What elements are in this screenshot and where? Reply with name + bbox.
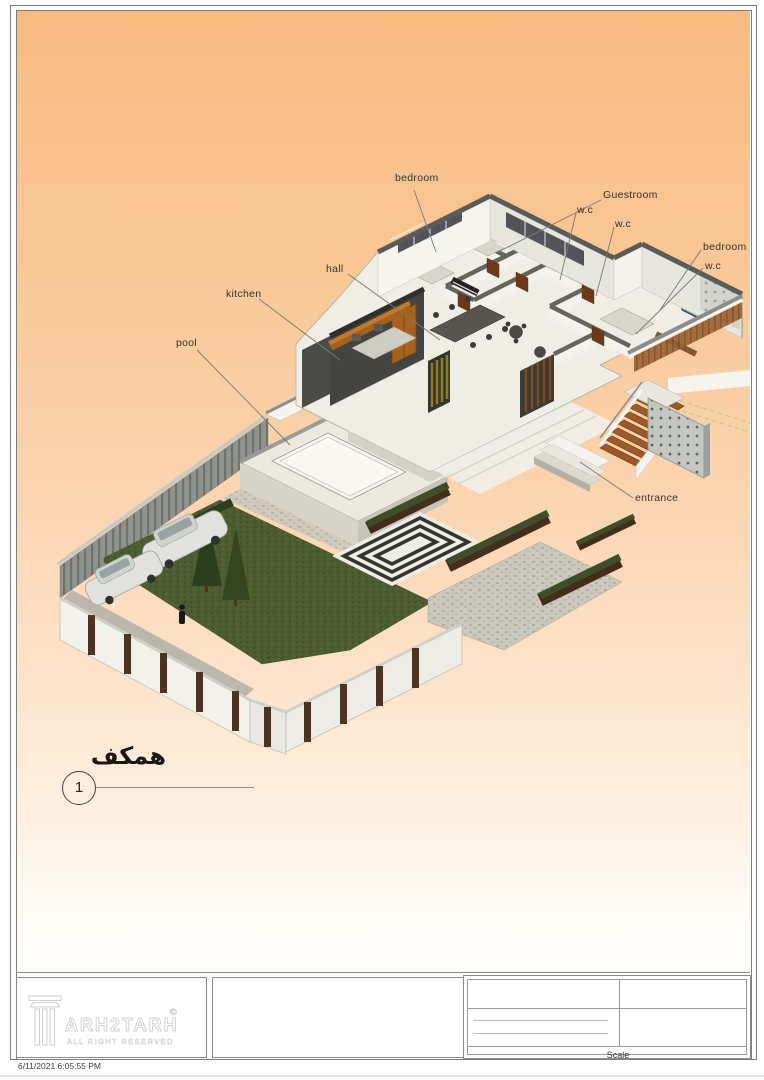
title-block-rule bbox=[473, 1033, 608, 1034]
perforated-screen bbox=[648, 398, 710, 478]
company-logo: ARH2TARH © ALL RIGHT RESERVED bbox=[28, 993, 188, 1053]
title-block-rule bbox=[473, 1020, 608, 1021]
scale-label: Scale bbox=[588, 1050, 648, 1060]
column-logo-icon bbox=[28, 995, 62, 1049]
title-block-rule bbox=[468, 1008, 746, 1009]
label-pool: pool bbox=[176, 337, 197, 349]
brand-name: ARH2TARH bbox=[65, 1015, 179, 1036]
floor-title-farsi: همکف bbox=[96, 742, 166, 770]
view-number-bubble: 1 bbox=[62, 771, 96, 805]
copyright-icon: © bbox=[170, 1007, 177, 1017]
label-wc-top-left: w.c bbox=[577, 204, 593, 216]
label-bedroom-top: bedroom bbox=[395, 172, 439, 184]
label-kitchen: kitchen bbox=[226, 288, 261, 300]
label-wc-top-right: w.c bbox=[615, 218, 631, 230]
sheet-page: bedroom Guestroom w.c w.c bedroom w.c ha… bbox=[0, 0, 764, 1080]
callout-reference-line bbox=[96, 787, 254, 788]
title-block-rule bbox=[468, 1046, 746, 1047]
label-hall: hall bbox=[326, 263, 344, 275]
page-edge-shadow bbox=[0, 1075, 764, 1077]
title-block-inner-border: Scale bbox=[467, 979, 747, 1055]
print-timestamp: 6/11/2021 6:05:55 PM bbox=[18, 1061, 101, 1071]
label-guestroom: Guestroom bbox=[603, 189, 658, 201]
title-block-empty-cell bbox=[212, 977, 471, 1058]
brand-tagline: ALL RIGHT RESERVED bbox=[67, 1037, 174, 1046]
person-figure bbox=[179, 604, 185, 624]
title-block-scale-cell: Scale bbox=[463, 975, 751, 1059]
label-wc-right: w.c bbox=[705, 260, 721, 272]
label-bedroom-right: bedroom bbox=[703, 241, 747, 253]
label-entrance: entrance bbox=[635, 492, 678, 504]
title-block-divider bbox=[619, 980, 620, 1046]
